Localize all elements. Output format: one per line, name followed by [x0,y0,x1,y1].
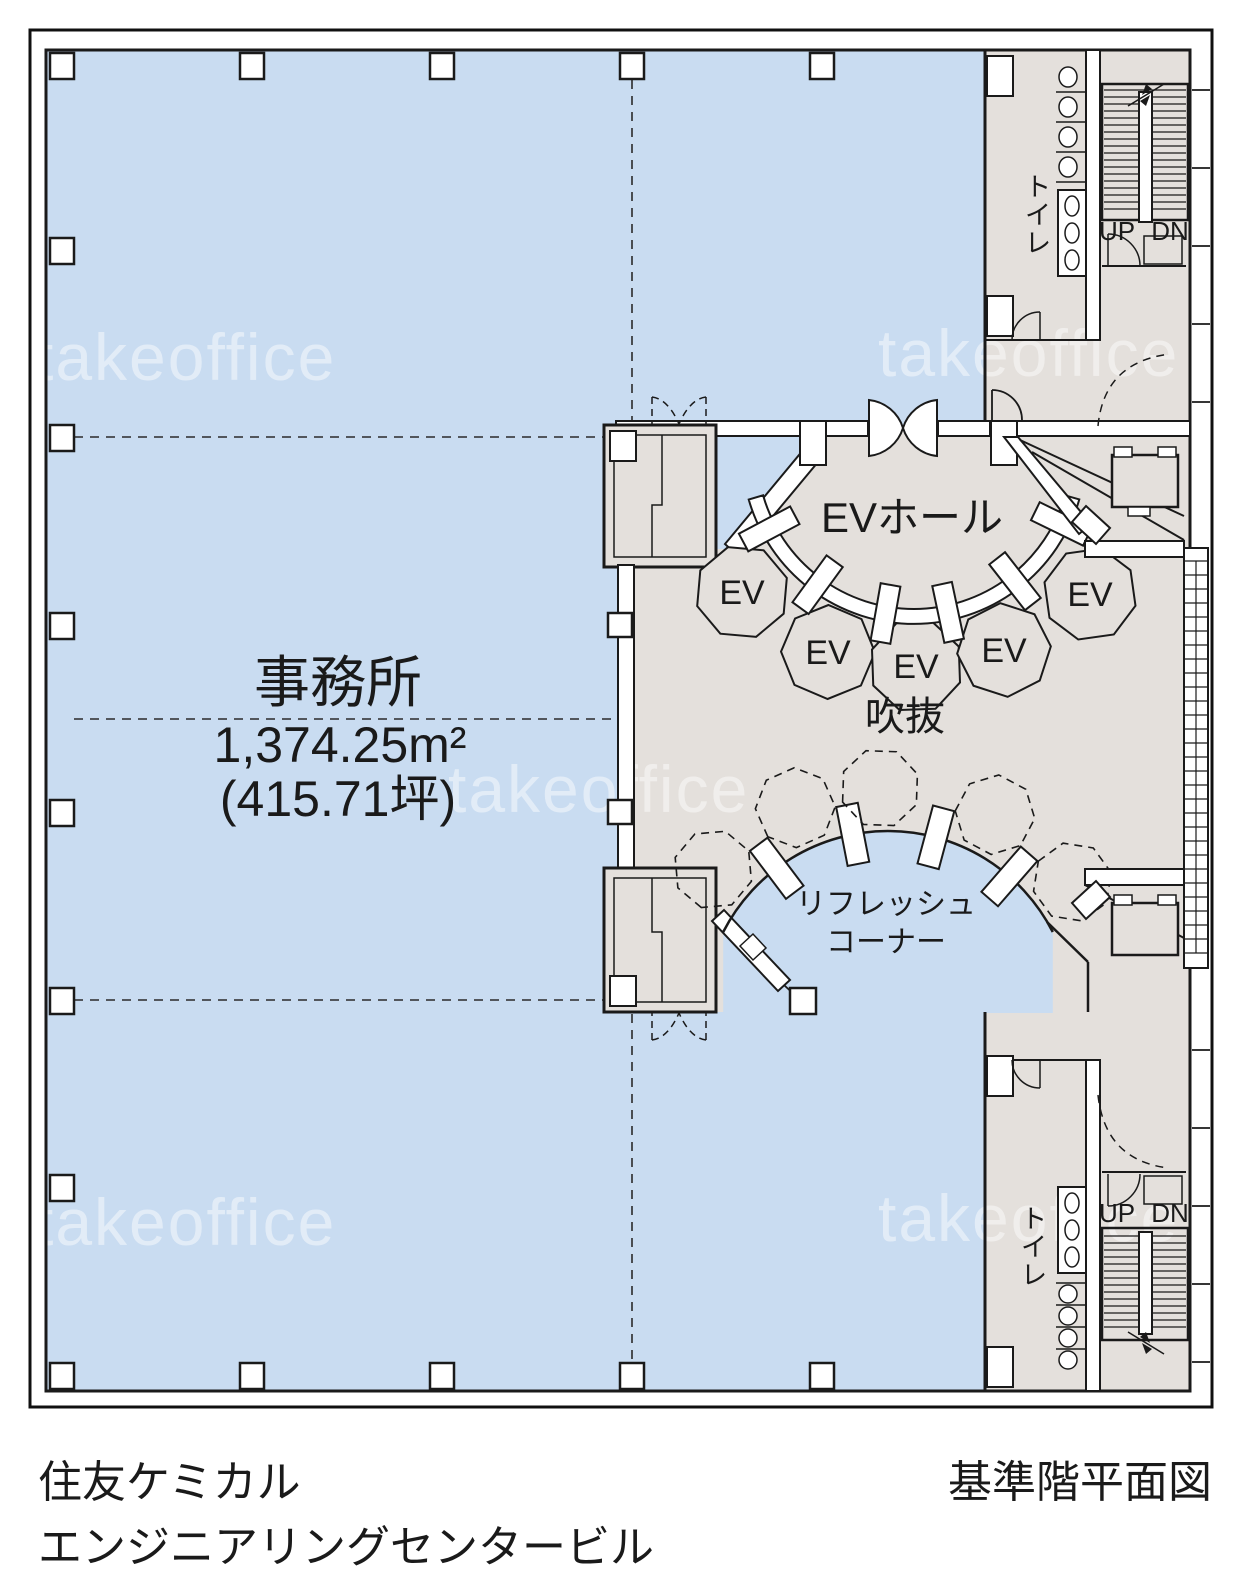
atrium-label: 吹抜 [865,695,945,739]
column [240,1363,264,1389]
elevator-label: EV [719,574,765,612]
column [610,431,636,461]
office-area-tsubo: (415.71坪) [220,771,456,827]
building-name-line1: 住友ケミカル [38,1458,301,1507]
column [240,53,264,79]
wall [1086,50,1100,340]
stairs-south-down-label: DN [1151,1198,1189,1228]
toilet-north-label-char: レ [1025,228,1051,258]
east-louver-strip [1184,548,1208,968]
watermark-text: takeoffice [448,752,749,826]
toilet-south-label-char: イ [1021,1232,1047,1262]
floor-plan-page: takeoffice takeoffice takeoffice takeoff… [0,0,1250,1592]
elevator-label: EV [893,648,939,686]
stairs-north-down-label: DN [1151,216,1189,246]
stair-divider [1139,92,1152,222]
column [50,1175,74,1201]
wall [1085,541,1184,557]
elevator-label: EV [805,634,851,672]
refresh-corner-label-line2: コーナー [826,926,946,959]
column [50,988,74,1014]
toilet-south-label-char: レ [1021,1260,1047,1290]
pilaster [800,421,826,465]
stair-divider [1139,1232,1152,1334]
column [810,1363,834,1389]
refresh-corner-label-line1: リフレッシュ [796,888,976,921]
column [608,613,632,637]
column [50,53,74,79]
column [608,800,632,824]
equipment-box [1112,903,1178,955]
column [620,1363,644,1389]
column [50,613,74,639]
toilet-north-label-char: ト [1025,172,1051,202]
office-area-m2: 1,374.25m² [214,717,467,773]
column [810,53,834,79]
ev-hall-label: EVホール [821,494,1003,541]
watermark-text: takeoffice [878,316,1179,390]
office-label: 事務所 [254,651,422,714]
column [620,53,644,79]
column [610,976,636,1006]
stairs-north-up-label: UP [1099,216,1135,246]
column [430,1363,454,1389]
toilet-north-label-char: イ [1025,200,1051,230]
building-name-line2: エンジニアリングセンタービル [38,1523,654,1572]
floor-plan-drawing: takeoffice takeoffice takeoffice takeoff… [0,0,1250,1592]
column [50,800,74,826]
wall [1085,869,1184,885]
equipment-box [1112,455,1178,507]
wall [1086,1060,1100,1391]
column [790,988,816,1014]
elevator-label: EV [1067,576,1113,614]
column [430,53,454,79]
footer: 住友ケミカル エンジニアリングセンタービル 基準階平面図 [38,1458,1212,1572]
elevator-label: EV [981,632,1027,670]
toilet-south-label-char: ト [1021,1204,1047,1234]
column [50,238,74,264]
drawing-title: 基準階平面図 [948,1458,1212,1507]
stairs-south-up-label: UP [1099,1198,1135,1228]
column [50,425,74,451]
column [50,1363,74,1389]
watermark-text: takeoffice [35,320,336,394]
watermark-text: takeoffice [35,1185,336,1259]
